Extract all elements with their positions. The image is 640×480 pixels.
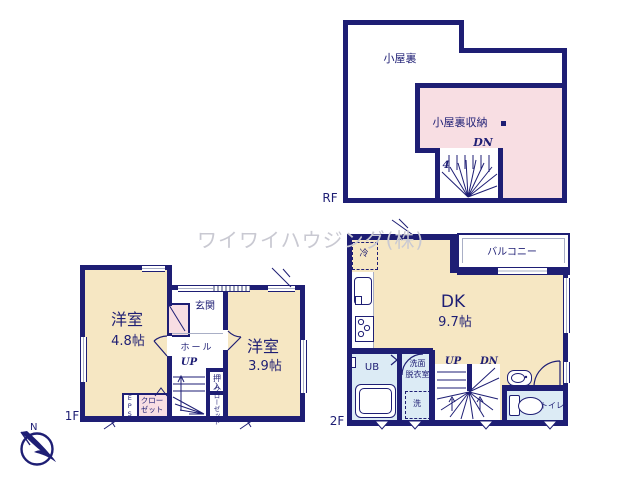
washroom-label-1: 洗面 — [400, 358, 435, 369]
wall — [457, 267, 498, 273]
wall — [80, 416, 305, 422]
hall-label: ホール — [176, 342, 218, 354]
wall — [459, 48, 567, 53]
balcony-label: バルコニー — [467, 246, 557, 260]
1f-stairs-up-label: UP — [177, 357, 201, 369]
dk-label: DK — [420, 293, 486, 312]
2f-floor-label: 2F — [325, 414, 349, 428]
room-39-label: 洋室 — [231, 337, 295, 356]
eps-label: EPS — [124, 396, 135, 415]
wall — [347, 234, 352, 425]
wall — [250, 285, 268, 290]
stair-divider — [467, 364, 472, 391]
room-48-left-window — [80, 337, 87, 382]
wall — [343, 198, 567, 203]
room-48-label: 洋室 — [95, 310, 159, 329]
attic-storage-label: 小屋裏収納 — [415, 114, 505, 130]
closet-48-label-1: クロー — [138, 396, 166, 405]
hall-right-window — [563, 362, 570, 383]
balcony-window — [498, 267, 547, 275]
wall — [502, 385, 507, 420]
wall — [347, 420, 568, 426]
bathtub-inner — [359, 388, 392, 414]
closet-48-label-2: ゼット — [138, 405, 166, 414]
floor-plan-page: 小屋裏 小屋裏収納 DN 4 RF 冷 DK 9.7帖 バルコニ — [0, 0, 640, 480]
wall — [206, 368, 228, 372]
kitchen-faucet — [355, 296, 362, 305]
toilet-label: トイレ — [538, 400, 566, 411]
wall — [415, 83, 567, 88]
washer-label: 洗 — [405, 398, 429, 410]
entrance-label: 玄関 — [185, 300, 225, 314]
washroom-label-2: 脱衣室 — [399, 369, 436, 380]
1f-stairwell — [172, 370, 206, 416]
wall — [498, 148, 503, 203]
entrance-step-line — [172, 333, 223, 334]
compass-north-label: N — [30, 422, 37, 433]
dk-right-window — [563, 278, 570, 333]
wall — [435, 148, 440, 203]
rf-floor-label: RF — [317, 191, 343, 205]
room-39-right-window — [300, 340, 307, 393]
rf-stairs-count-label: 4 — [440, 159, 452, 172]
2f-stairs-up-label: UP — [441, 356, 465, 368]
attic-storage-fill-right — [503, 148, 567, 200]
2f-stairs-dn-label: DN — [477, 356, 501, 368]
wall — [80, 265, 85, 337]
entrance-door — [213, 285, 250, 292]
wall — [502, 385, 568, 391]
ub-label: UB — [358, 361, 386, 374]
wall — [450, 234, 457, 273]
entrance-side-window — [178, 285, 213, 292]
wall — [223, 350, 228, 368]
kitchen-stove — [355, 316, 374, 342]
room-39-top-window — [268, 285, 295, 292]
wall — [300, 285, 305, 340]
compass-north-arrow: N — [14, 421, 66, 473]
wall — [167, 358, 172, 416]
rf-stairs-dn-label: DN — [470, 136, 496, 149]
wall — [167, 285, 178, 290]
dk-size-label: 9.7帖 — [420, 314, 490, 330]
room-48-door-opening — [167, 336, 172, 356]
wall — [347, 348, 433, 354]
room-48-size-label: 4.8帖 — [95, 333, 161, 350]
attic-label: 小屋裏 — [368, 50, 432, 66]
room-39-size-label: 3.9帖 — [232, 358, 298, 375]
1f-floor-label: 1F — [61, 409, 83, 423]
wall — [343, 20, 464, 25]
wall — [563, 333, 568, 362]
room-48-top-window — [142, 265, 165, 272]
hall-basin-bowl — [511, 373, 525, 383]
closet-vertical-label: クローゼット — [208, 396, 224, 415]
watermark-text: ワイワイハウジング(株) — [197, 224, 424, 253]
wall — [343, 20, 348, 203]
wall — [562, 48, 567, 203]
wall — [80, 265, 142, 270]
